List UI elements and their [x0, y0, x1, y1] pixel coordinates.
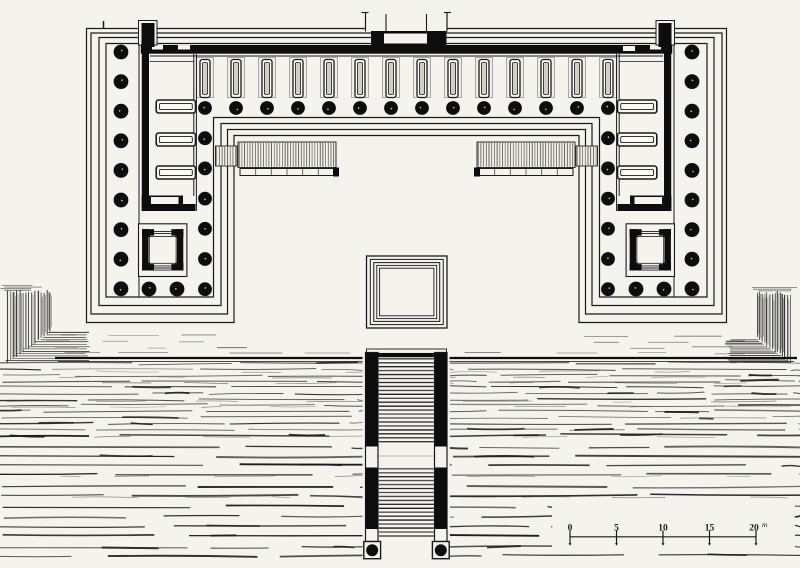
svg-text:5: 5	[614, 524, 619, 534]
svg-text:10: 10	[658, 524, 668, 534]
svg-text:20: 20	[749, 524, 759, 534]
svg-text:m: m	[762, 520, 768, 529]
svg-text:15: 15	[705, 524, 715, 534]
svg-text:0: 0	[568, 524, 573, 534]
